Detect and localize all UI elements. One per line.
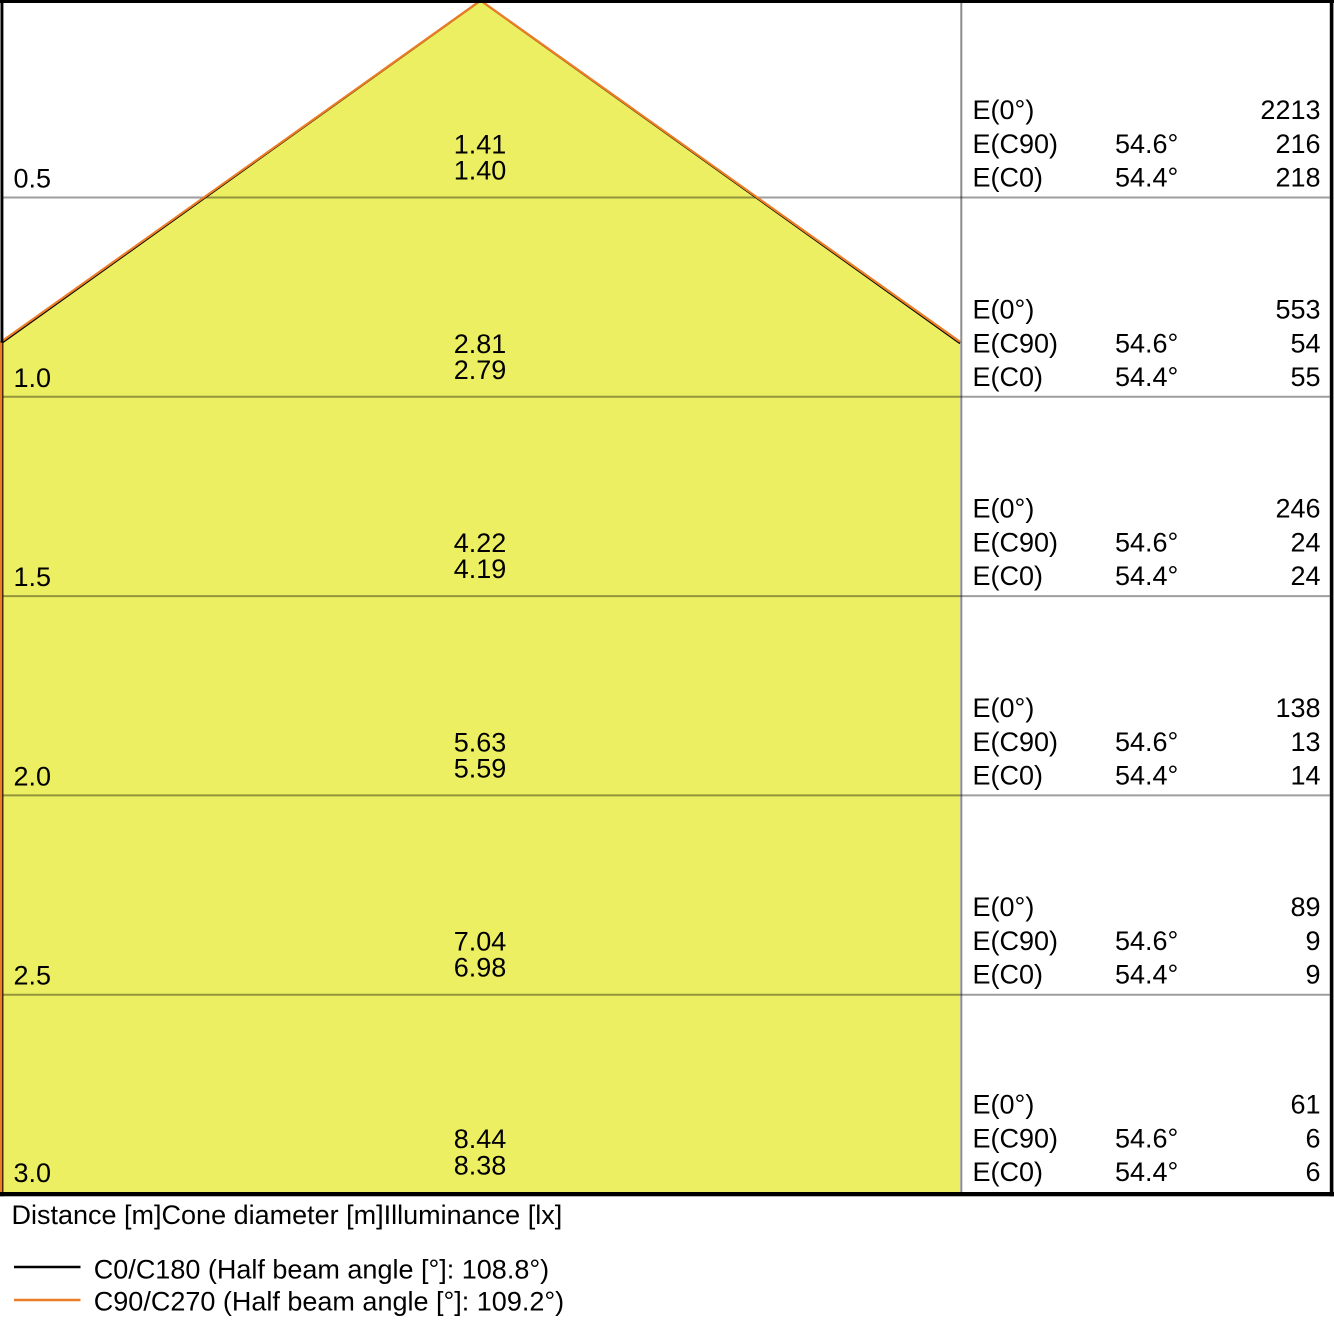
svg-text:E(C0): E(C0) (973, 760, 1044, 790)
svg-text:8.44: 8.44 (454, 1124, 507, 1154)
svg-text:E(C90): E(C90) (973, 1124, 1059, 1154)
svg-text:54.4°: 54.4° (1115, 163, 1178, 193)
svg-text:E(C0): E(C0) (973, 561, 1044, 591)
svg-text:54.4°: 54.4° (1115, 561, 1178, 591)
svg-text:54.6°: 54.6° (1115, 528, 1178, 558)
svg-text:6.98: 6.98 (454, 953, 507, 983)
svg-text:4.19: 4.19 (454, 554, 507, 584)
svg-text:1.40: 1.40 (454, 156, 507, 186)
svg-text:E(C90): E(C90) (973, 129, 1059, 159)
svg-text:553: 553 (1275, 294, 1320, 324)
svg-text:E(0°): E(0°) (973, 294, 1035, 324)
svg-text:54.6°: 54.6° (1115, 1124, 1178, 1154)
svg-text:E(C0): E(C0) (973, 1157, 1044, 1187)
svg-text:E(C0): E(C0) (973, 163, 1044, 193)
svg-text:E(0°): E(0°) (973, 1090, 1035, 1120)
svg-text:9: 9 (1305, 926, 1320, 956)
svg-text:54.6°: 54.6° (1115, 129, 1178, 159)
svg-text:138: 138 (1275, 693, 1320, 723)
svg-text:0.5: 0.5 (14, 164, 52, 194)
svg-text:E(0°): E(0°) (973, 95, 1035, 125)
svg-text:54.6°: 54.6° (1115, 328, 1178, 358)
svg-text:218: 218 (1275, 163, 1320, 193)
svg-text:14: 14 (1290, 760, 1320, 790)
svg-text:1.5: 1.5 (14, 562, 52, 592)
svg-text:13: 13 (1290, 727, 1320, 757)
svg-text:3.0: 3.0 (14, 1158, 52, 1188)
svg-text:9: 9 (1305, 960, 1320, 990)
svg-text:1.0: 1.0 (14, 363, 52, 393)
svg-text:61: 61 (1290, 1090, 1320, 1120)
svg-text:E(C90): E(C90) (973, 926, 1059, 956)
svg-text:216: 216 (1275, 129, 1320, 159)
svg-text:E(C0): E(C0) (973, 362, 1044, 392)
svg-text:Distance [m]Cone diameter [m]I: Distance [m]Cone diameter [m]Illuminance… (12, 1200, 563, 1230)
svg-text:54.4°: 54.4° (1115, 1157, 1178, 1187)
svg-text:54.6°: 54.6° (1115, 727, 1178, 757)
svg-text:E(C90): E(C90) (973, 328, 1059, 358)
svg-text:24: 24 (1290, 528, 1320, 558)
svg-text:E(0°): E(0°) (973, 494, 1035, 524)
svg-text:54: 54 (1290, 328, 1320, 358)
svg-text:54.4°: 54.4° (1115, 362, 1178, 392)
svg-text:6: 6 (1305, 1124, 1320, 1154)
svg-text:54.6°: 54.6° (1115, 926, 1178, 956)
svg-text:6: 6 (1305, 1157, 1320, 1187)
svg-text:54.4°: 54.4° (1115, 960, 1178, 990)
svg-text:2.79: 2.79 (454, 355, 507, 385)
svg-text:2213: 2213 (1260, 95, 1320, 125)
svg-text:C90/C270 (Half beam angle [°]:: C90/C270 (Half beam angle [°]: 109.2°) (94, 1287, 564, 1317)
svg-text:8.38: 8.38 (454, 1151, 507, 1181)
svg-text:2.0: 2.0 (14, 761, 52, 791)
svg-text:54.4°: 54.4° (1115, 760, 1178, 790)
svg-text:E(0°): E(0°) (973, 892, 1035, 922)
svg-text:55: 55 (1290, 362, 1320, 392)
svg-text:5.59: 5.59 (454, 753, 507, 783)
svg-text:E(C90): E(C90) (973, 727, 1059, 757)
svg-text:2.5: 2.5 (14, 961, 52, 991)
svg-text:E(C90): E(C90) (973, 528, 1059, 558)
svg-text:246: 246 (1275, 494, 1320, 524)
svg-text:E(C0): E(C0) (973, 960, 1044, 990)
svg-text:E(0°): E(0°) (973, 693, 1035, 723)
svg-text:89: 89 (1290, 892, 1320, 922)
svg-text:24: 24 (1290, 561, 1320, 591)
svg-text:C0/C180 (Half beam angle [°]:: C0/C180 (Half beam angle [°]: 108.8°) (94, 1255, 549, 1285)
